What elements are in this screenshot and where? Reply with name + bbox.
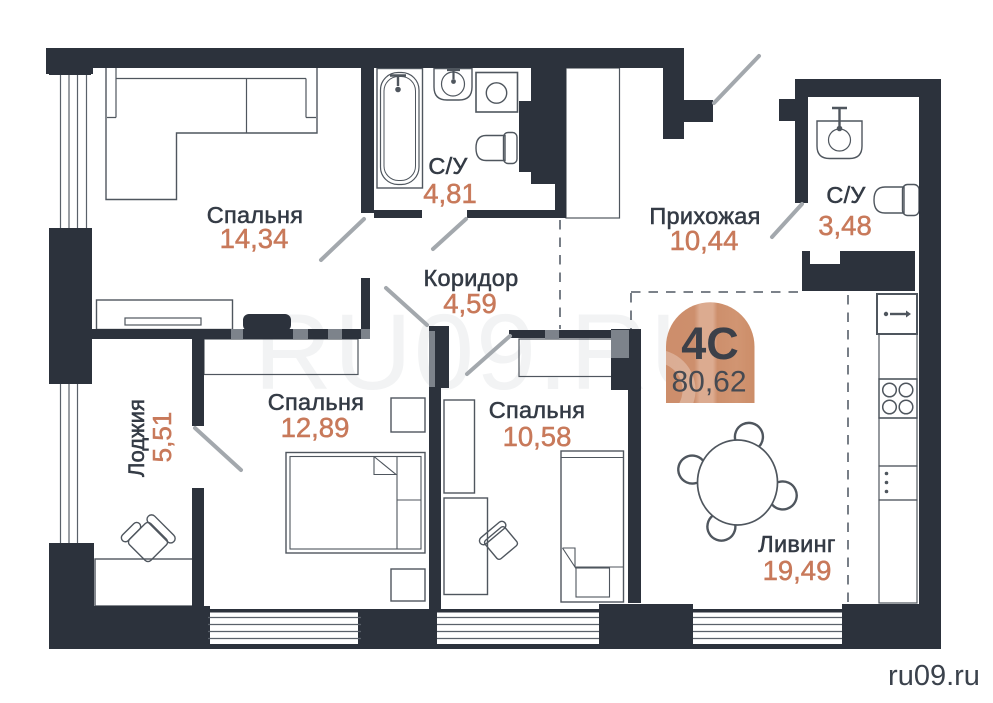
svg-text:10,58: 10,58 — [503, 421, 572, 452]
svg-text:5,51: 5,51 — [147, 412, 177, 463]
svg-text:3,48: 3,48 — [818, 210, 872, 241]
svg-text:12,89: 12,89 — [281, 412, 350, 443]
svg-text:10,44: 10,44 — [670, 225, 739, 256]
svg-text:4,59: 4,59 — [443, 288, 497, 319]
svg-text:С/У: С/У — [428, 153, 468, 179]
svg-text:4C: 4C — [681, 318, 739, 369]
svg-text:4,81: 4,81 — [423, 178, 477, 209]
svg-text:19,49: 19,49 — [763, 555, 832, 586]
svg-text:С/У: С/У — [826, 182, 866, 208]
svg-text:80,62: 80,62 — [671, 366, 746, 399]
svg-text:Ливинг: Ливинг — [758, 531, 836, 557]
svg-text:14,34: 14,34 — [220, 223, 289, 254]
svg-text:ru09.ru: ru09.ru — [888, 660, 980, 692]
svg-text:Лоджия: Лоджия — [124, 399, 149, 477]
svg-text:Спальня: Спальня — [489, 397, 586, 423]
